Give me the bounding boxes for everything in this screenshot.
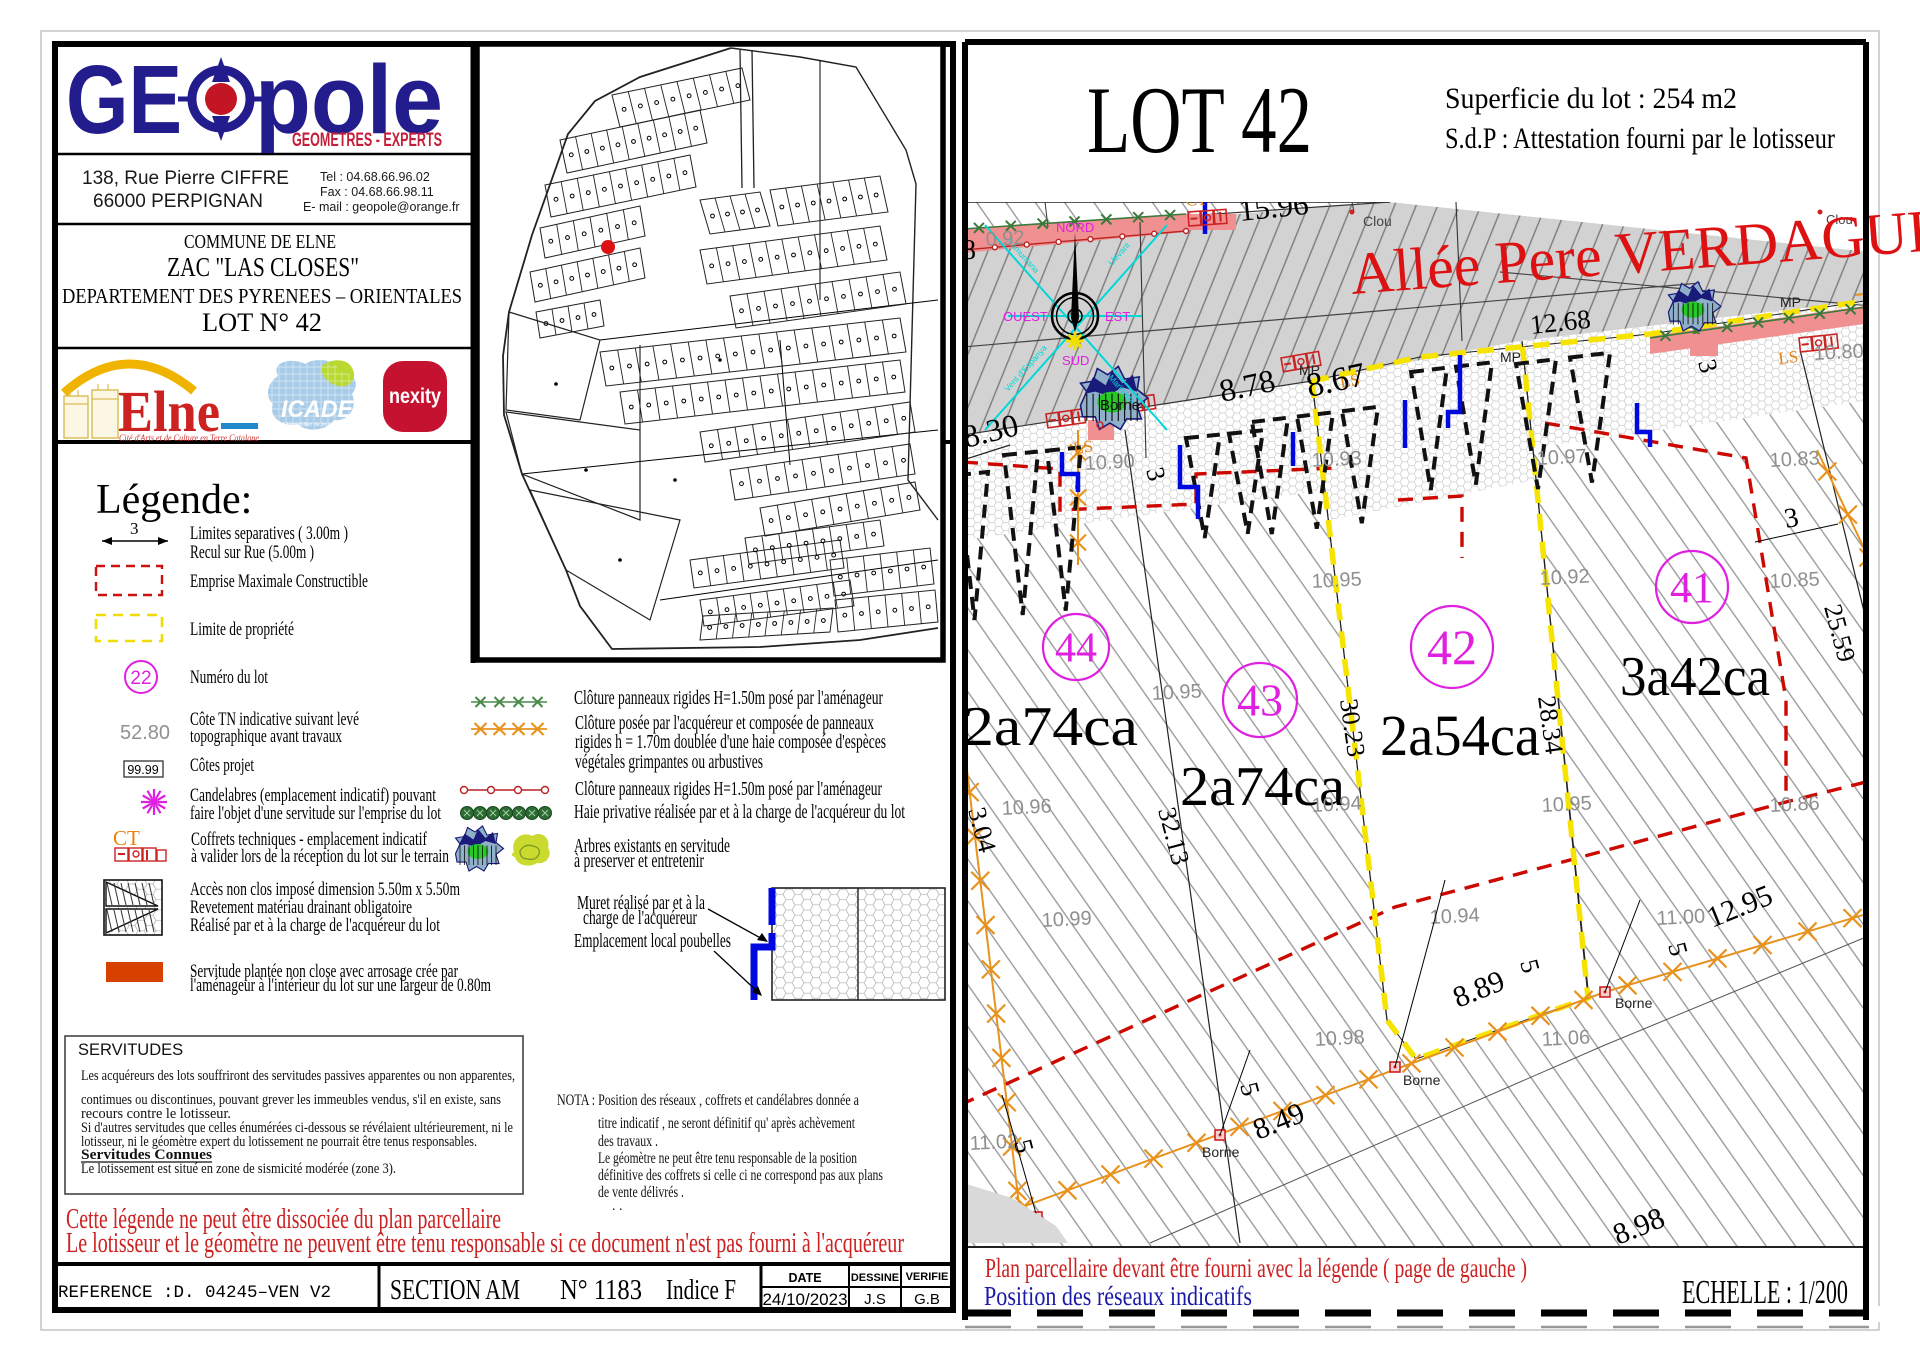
svg-text:41: 41 bbox=[1670, 563, 1714, 612]
svg-text:l'aménageur à l'intérieur du l: l'aménageur à l'intérieur du lot sur une… bbox=[190, 975, 491, 996]
svg-text:des travaux .: des travaux . bbox=[598, 1133, 658, 1150]
svg-text:S.d.P : Attestation fourni par: S.d.P : Attestation fourni par le lotiss… bbox=[1445, 122, 1835, 155]
svg-text:10.95: 10.95 bbox=[1311, 568, 1362, 593]
svg-text:Le géomètre ne peut être tenu: Le géomètre ne peut être tenu responsabl… bbox=[598, 1150, 857, 1167]
svg-text:faire l'objet d'une servitude: faire l'objet d'une servitude sur l'empr… bbox=[190, 803, 442, 824]
svg-text:à preserver et entretenir: à preserver et entretenir bbox=[574, 850, 704, 872]
svg-text:44: 44 bbox=[1055, 625, 1097, 671]
svg-text:10.85: 10.85 bbox=[1769, 568, 1820, 593]
svg-text:DESSINE: DESSINE bbox=[851, 1272, 899, 1284]
svg-text:2a74ca: 2a74ca bbox=[963, 696, 1138, 758]
svg-text:SECTION AM: SECTION AM bbox=[390, 1274, 520, 1306]
svg-text:Côtes projet: Côtes projet bbox=[190, 755, 254, 776]
svg-text:nexity: nexity bbox=[389, 385, 441, 408]
svg-text:66000 PERPIGNAN: 66000 PERPIGNAN bbox=[93, 191, 263, 212]
svg-text:REFERENCE :D. 04245–VEN V2: REFERENCE :D. 04245–VEN V2 bbox=[58, 1283, 331, 1303]
svg-text:24/10/2023: 24/10/2023 bbox=[762, 1290, 847, 1309]
svg-text:Fax : 04.68.66.98.11: Fax : 04.68.66.98.11 bbox=[320, 185, 434, 199]
svg-text:Réalisé par et à la charge de: Réalisé par et à la charge de l'acquéreu… bbox=[190, 915, 441, 936]
svg-text:11.00: 11.00 bbox=[1656, 905, 1706, 930]
svg-text:rigides h = 1.70m doublée d'un: rigides h = 1.70m doublée d'une haie com… bbox=[575, 731, 886, 753]
svg-text:Clou: Clou bbox=[1363, 213, 1392, 229]
svg-text:10.95: 10.95 bbox=[1151, 680, 1202, 705]
svg-text:Borne: Borne bbox=[1403, 1072, 1441, 1088]
svg-text:topographique avant travaux: topographique avant travaux bbox=[190, 726, 342, 747]
svg-text:3: 3 bbox=[130, 519, 139, 538]
svg-text:42: 42 bbox=[1427, 619, 1477, 675]
svg-text:définitive des coffrets si cel: définitive des coffrets si celle ci ne c… bbox=[598, 1167, 883, 1184]
svg-text:138, Rue Pierre CIFFRE: 138, Rue Pierre CIFFRE bbox=[82, 168, 289, 189]
svg-text:Borne: Borne bbox=[1202, 1144, 1240, 1160]
svg-text:OUEST: OUEST bbox=[1003, 309, 1048, 324]
svg-text:NORD: NORD bbox=[1056, 220, 1094, 235]
svg-text:SERVITUDES: SERVITUDES bbox=[78, 1041, 183, 1059]
svg-text:10.94: 10.94 bbox=[1311, 792, 1362, 817]
svg-text:Légende:: Légende: bbox=[96, 477, 252, 523]
svg-text:GEOMETRES - EXPERTS: GEOMETRES - EXPERTS bbox=[292, 130, 442, 151]
svg-text:11.06: 11.06 bbox=[1541, 1026, 1591, 1051]
svg-text:ZAC "LAS CLOSES": ZAC "LAS CLOSES" bbox=[167, 252, 359, 282]
svg-text:de vente délivrés .: de vente délivrés . bbox=[598, 1184, 684, 1201]
svg-text:10.94: 10.94 bbox=[1429, 904, 1480, 929]
svg-text:10.86: 10.86 bbox=[1769, 792, 1820, 817]
svg-text:10.96: 10.96 bbox=[1001, 795, 1052, 820]
svg-text:CT: CT bbox=[113, 826, 140, 850]
svg-text:DATE: DATE bbox=[788, 1271, 821, 1285]
svg-text:L'immobilier de tous vos futur: L'immobilier de tous vos futurs bbox=[283, 422, 357, 428]
svg-text:Clôture panneaux rigides H=1.5: Clôture panneaux rigides H=1.50m posé pa… bbox=[575, 778, 882, 800]
svg-text:végétales grimpantes ou arbust: végétales grimpantes ou arbustives bbox=[575, 751, 763, 773]
svg-text:43: 43 bbox=[1237, 675, 1283, 726]
svg-text:Haie privative réalisée par et: Haie privative réalisée par et à la char… bbox=[574, 801, 905, 823]
svg-text:LOT 42: LOT 42 bbox=[1087, 67, 1312, 173]
svg-text:ICADE: ICADE bbox=[281, 396, 354, 423]
svg-text:Emprise Maximale Constructible: Emprise Maximale Constructible bbox=[190, 571, 368, 592]
svg-text:22: 22 bbox=[130, 668, 151, 689]
svg-text:SUD: SUD bbox=[1062, 353, 1089, 368]
svg-text:Numéro du lot: Numéro du lot bbox=[190, 667, 269, 688]
svg-text:Superficie du lot : 254 m2: Superficie du lot : 254 m2 bbox=[1445, 82, 1737, 115]
svg-text:Le lotissement est situé en zo: Le lotissement est situé en zone de sism… bbox=[81, 1161, 396, 1177]
svg-text:. .: . . bbox=[612, 1199, 623, 1214]
svg-text:10.93: 10.93 bbox=[1311, 447, 1362, 472]
svg-text:Cité d'Arts et de Culture en T: Cité d'Arts et de Culture en Terre Catal… bbox=[119, 433, 259, 443]
svg-text:10.80: 10.80 bbox=[1813, 340, 1864, 365]
svg-text:Limite de propriété: Limite de propriété bbox=[190, 619, 294, 640]
svg-text:Recul sur Rue (5.00m ): Recul sur Rue (5.00m ) bbox=[190, 542, 314, 563]
svg-text:MP: MP bbox=[1500, 349, 1521, 365]
svg-text:0.92: 0.92 bbox=[985, 227, 1025, 251]
svg-text:99.99: 99.99 bbox=[127, 763, 158, 777]
svg-text:10.83: 10.83 bbox=[1769, 447, 1820, 472]
svg-text:10.99: 10.99 bbox=[1041, 907, 1092, 932]
svg-text:10.92: 10.92 bbox=[1539, 565, 1590, 590]
svg-text:MP: MP bbox=[1780, 294, 1801, 310]
svg-text:charge de l'acquéreur: charge de l'acquéreur bbox=[583, 907, 697, 929]
svg-text:G.B: G.B bbox=[914, 1291, 940, 1308]
svg-text:ECHELLE : 1/200: ECHELLE : 1/200 bbox=[1682, 1274, 1848, 1311]
svg-text:titre indicatif , ne seront dé: titre indicatif , ne seront définitif qu… bbox=[598, 1115, 855, 1132]
svg-text:Tel : 04.68.66.96.02: Tel : 04.68.66.96.02 bbox=[320, 170, 430, 184]
svg-text:10.97: 10.97 bbox=[1536, 445, 1587, 470]
svg-text:Borne: Borne bbox=[1100, 397, 1140, 414]
svg-text:à valider lors de la réception: à valider lors de la réception du lot su… bbox=[191, 846, 449, 867]
svg-text:E- mail : geopole@orange.fr: E- mail : geopole@orange.fr bbox=[303, 200, 460, 214]
svg-text:10.90: 10.90 bbox=[1084, 450, 1135, 475]
svg-text:12.68: 12.68 bbox=[1528, 304, 1592, 340]
svg-text:2a54ca: 2a54ca bbox=[1380, 703, 1540, 768]
svg-text:VERIFIE: VERIFIE bbox=[906, 1271, 949, 1283]
svg-text:Plan parcellaire devant être f: Plan parcellaire devant être fourni avec… bbox=[985, 1253, 1527, 1283]
svg-text:Indice F: Indice F bbox=[666, 1274, 736, 1306]
svg-text:N° 1183: N° 1183 bbox=[560, 1274, 642, 1306]
svg-text:GE: GE bbox=[66, 45, 182, 154]
svg-text:3a42ca: 3a42ca bbox=[1620, 646, 1770, 708]
svg-text:LS: LS bbox=[1777, 347, 1799, 368]
svg-text:NOTA : Position des réseaux ,: NOTA : Position des réseaux , coffrets e… bbox=[557, 1092, 859, 1109]
svg-text:Borne: Borne bbox=[1615, 995, 1653, 1011]
svg-text:Clôture panneaux rigides H=1.5: Clôture panneaux rigides H=1.50m posé pa… bbox=[574, 687, 883, 709]
svg-text:Emplacement local poubelles: Emplacement local poubelles bbox=[574, 930, 731, 952]
svg-text:10.98: 10.98 bbox=[1314, 1026, 1365, 1051]
svg-text:COMMUNE DE ELNE: COMMUNE DE ELNE bbox=[184, 231, 336, 253]
svg-text:LOT N° 42: LOT N° 42 bbox=[202, 308, 322, 337]
svg-text:Le lotisseur et le géomètre ne: Le lotisseur et le géomètre ne peuvent ê… bbox=[66, 1228, 904, 1259]
svg-text:J.S: J.S bbox=[864, 1291, 886, 1308]
svg-text:Limites separatives ( 3.00m ): Limites separatives ( 3.00m ) bbox=[190, 523, 348, 544]
svg-text:EST: EST bbox=[1105, 309, 1130, 324]
svg-text:52.80: 52.80 bbox=[120, 722, 170, 744]
svg-text:DEPARTEMENT DES PYRENEES –: DEPARTEMENT DES PYRENEES – ORIENTALES bbox=[62, 284, 462, 308]
svg-text:10.95: 10.95 bbox=[1541, 792, 1592, 817]
svg-text:Les acquéreurs des lots souffr: Les acquéreurs des lots souffriront des … bbox=[81, 1068, 515, 1084]
